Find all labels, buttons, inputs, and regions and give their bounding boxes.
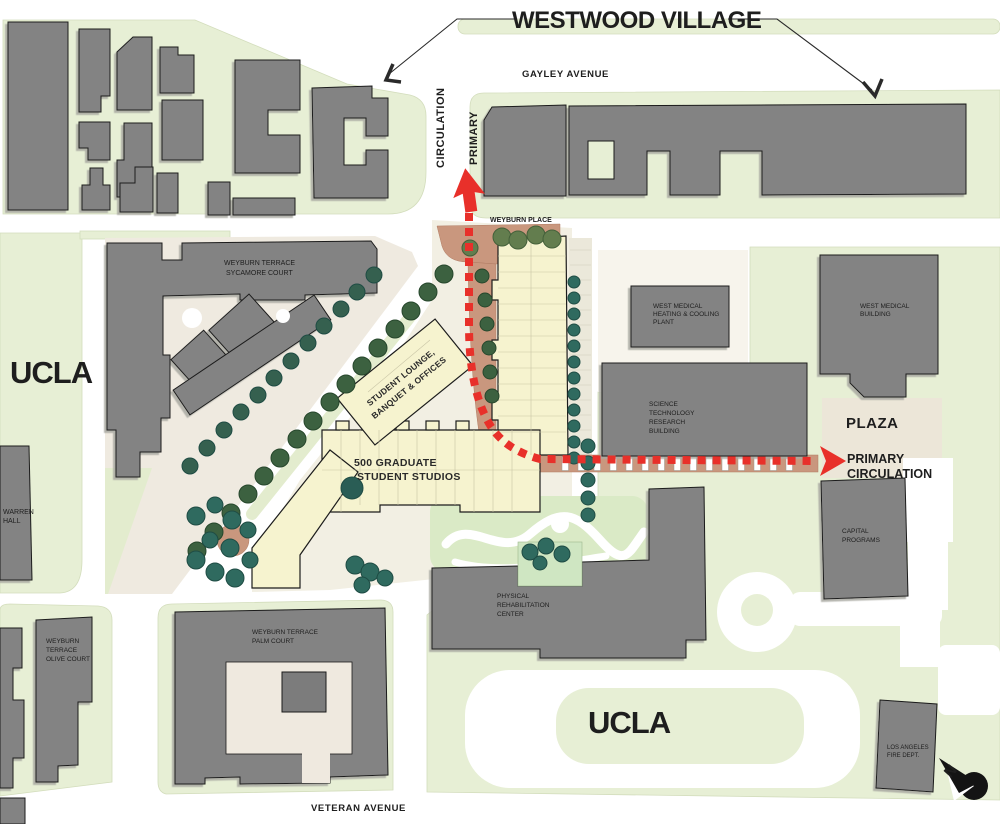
housing-east-walkway	[569, 238, 592, 470]
svg-text:WEST MEDICAL: WEST MEDICAL	[860, 303, 910, 310]
svg-text:FIRE DEPT.: FIRE DEPT.	[887, 753, 920, 759]
westwood-building	[117, 37, 152, 110]
svg-text:REHABILITATION: REHABILITATION	[497, 602, 550, 609]
svg-text:HALL: HALL	[3, 518, 21, 525]
gayley-avenue-label: GAYLEY AVENUE	[522, 69, 609, 80]
circulation-vertical-primary: PRIMARY	[468, 111, 480, 165]
sycamore-fountain	[182, 308, 202, 328]
studios-label-line2: STUDENT STUDIOS	[357, 471, 461, 483]
road-east-lower	[938, 645, 1000, 715]
weyburn-place-label: WEYBURN PLACE	[490, 217, 552, 224]
westwood-building	[157, 173, 178, 213]
svg-text:TERRACE: TERRACE	[46, 647, 78, 654]
svg-text:PROGRAMS: PROGRAMS	[842, 537, 881, 544]
housing-bump	[456, 421, 469, 430]
gayley-building-east	[569, 104, 966, 195]
plaza-label: PLAZA	[846, 415, 899, 432]
gayley-building-west	[484, 105, 566, 196]
svg-text:SYCAMORE COURT: SYCAMORE COURT	[226, 270, 293, 277]
housing-north-wing	[492, 236, 568, 455]
circulation-vertical-circulation: CIRCULATION	[435, 88, 447, 168]
housing-bump	[426, 421, 439, 430]
svg-text:PLANT: PLANT	[653, 319, 674, 326]
svg-text:OLIVE COURT: OLIVE COURT	[46, 656, 90, 663]
housing-bump	[336, 421, 349, 430]
westwood-building	[208, 182, 230, 215]
svg-text:PHYSICAL: PHYSICAL	[497, 593, 530, 600]
olive-building	[0, 798, 25, 824]
circulation-horizontal-circulation: CIRCULATION	[847, 467, 932, 481]
svg-text:PALM COURT: PALM COURT	[252, 638, 294, 645]
svg-text:WEYBURN: WEYBURN	[46, 638, 80, 645]
road-connector	[900, 607, 940, 667]
svg-text:LOS ANGELES: LOS ANGELES	[887, 745, 929, 751]
svg-text:WEYBURN TERRACE: WEYBURN TERRACE	[252, 629, 319, 636]
svg-text:TECHNOLOGY: TECHNOLOGY	[649, 410, 695, 417]
svg-text:HEATING & COOLING: HEATING & COOLING	[653, 311, 719, 318]
gayley-notch	[588, 141, 614, 179]
svg-text:CAPITAL: CAPITAL	[842, 528, 869, 535]
svg-text:WEST MEDICAL: WEST MEDICAL	[653, 303, 703, 310]
circulation-horizontal-primary: PRIMARY	[847, 452, 905, 466]
veteran-avenue-label: VETERAN AVENUE	[311, 803, 406, 814]
science-building	[602, 363, 807, 456]
svg-text:WARREN: WARREN	[3, 509, 34, 516]
road-plaza-south	[908, 540, 948, 610]
westwood-building	[233, 198, 295, 215]
svg-text:RESEARCH: RESEARCH	[649, 419, 685, 426]
page-title: WESTWOOD VILLAGE	[512, 7, 762, 34]
ucla-left-label: UCLA	[10, 355, 93, 390]
palm-courtyard-gap	[302, 750, 330, 783]
ucla-bottom-label: UCLA	[588, 705, 671, 740]
palm-inner-building	[282, 672, 326, 712]
site-plan-map: N WESTWOOD VILLAGE GAYLEY AVENUE WEYBURN…	[0, 0, 1000, 824]
svg-text:SCIENCE: SCIENCE	[649, 401, 679, 408]
westwood-building	[8, 22, 68, 210]
svg-text:BUILDING: BUILDING	[860, 311, 891, 318]
road-warren-sycamore	[83, 243, 105, 593]
studios-label-line1: 500 GRADUATE	[354, 457, 437, 469]
svg-text:CENTER: CENTER	[497, 611, 524, 618]
svg-text:WEYBURN TERRACE: WEYBURN TERRACE	[224, 260, 295, 267]
svg-text:BUILDING: BUILDING	[649, 428, 680, 435]
site-plan-page: N WESTWOOD VILLAGE GAYLEY AVENUE WEYBURN…	[0, 0, 1000, 824]
westwood-building	[162, 100, 203, 160]
culdesac-island	[741, 594, 773, 626]
sycamore-fountain-small	[276, 309, 290, 323]
